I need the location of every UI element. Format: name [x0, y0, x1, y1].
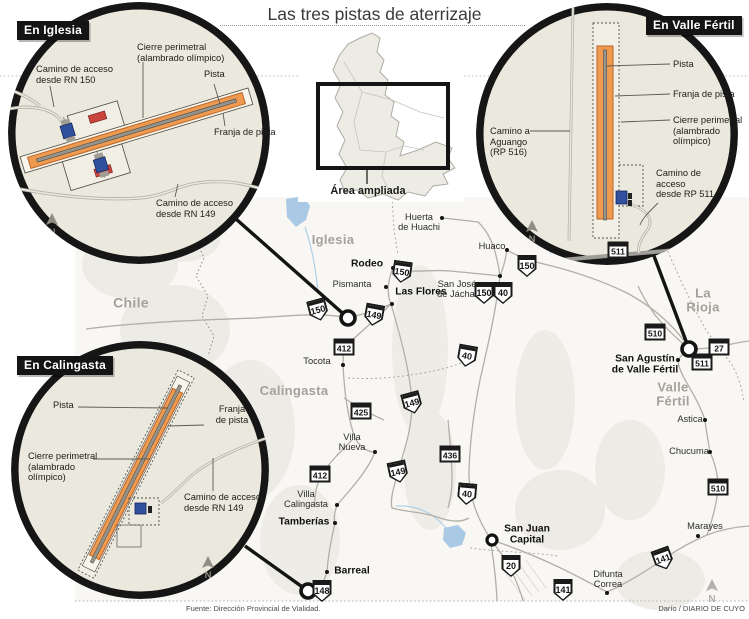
label-franja-de-pista: Franja de pista — [208, 404, 256, 425]
north-letter: N — [529, 234, 536, 245]
inset-title-valle-fertil: En Valle Fértil — [646, 16, 742, 35]
label-cierre-perimetral: Cierre perimetral (alambrado olímpico) — [28, 451, 97, 483]
overview-label: Área ampliada — [330, 185, 405, 197]
gate-blue — [135, 503, 146, 514]
capital-symbol — [487, 535, 497, 545]
label-franja-de-pista: Franja de pista — [214, 127, 276, 138]
label-acceso-rn149: Camino de acceso desde RN 149 — [184, 492, 261, 513]
label-pista: Pista — [53, 400, 74, 411]
label-cierre-perimetral: Cierre perimetral (alambrado olímpico) — [673, 115, 742, 147]
north-letter: N — [49, 227, 56, 238]
author-credit: Darío / DIARIO DE CUYO — [658, 604, 745, 613]
label-franja-de-pista: Franja de pista — [673, 89, 735, 100]
label-acceso-rn149: Camino de acceso desde RN 149 — [156, 198, 233, 219]
inset-title-calingasta: En Calingasta — [17, 356, 113, 375]
overview-inset — [298, 26, 464, 202]
label-acceso-rp511: Camino de acceso desde RP 511 — [656, 168, 714, 200]
label-camino-aguango: Camino a Aguango (RP 516) — [490, 126, 530, 158]
label-pista: Pista — [204, 69, 225, 80]
infographic-three-runways: N Las tres pistas de aterrizaje Área amp… — [0, 0, 749, 619]
north-letter: N — [205, 570, 212, 581]
source-credit: Fuente: Dirección Provincial de Vialidad… — [186, 604, 321, 613]
label-cierre-perimetral: Cierre perimetral (alambrado olímpico) — [137, 42, 224, 63]
label-pista: Pista — [673, 59, 694, 70]
inset-title-iglesia: En Iglesia — [17, 21, 89, 40]
page-title: Las tres pistas de aterrizaje — [268, 4, 482, 25]
gate-blue — [616, 191, 627, 204]
label-acceso-rn150: Camino de acceso desde RN 150 — [36, 64, 113, 85]
